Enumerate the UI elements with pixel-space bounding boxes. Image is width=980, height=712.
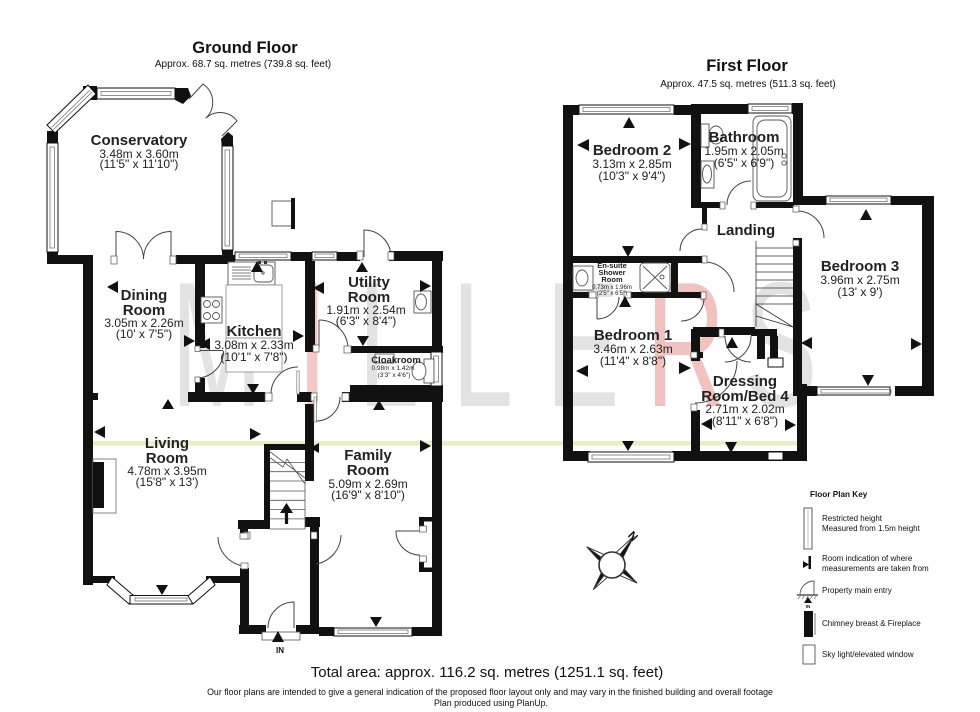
svg-text:Plan produced using PlanUp.: Plan produced using PlanUp. [434,698,548,708]
svg-text:(15'8" x 13'): (15'8" x 13') [136,475,199,489]
svg-text:Ground Floor: Ground Floor [192,39,298,57]
svg-text:(10' x 7'5"): (10' x 7'5") [116,327,172,341]
svg-text:(11'5" x 11'10"): (11'5" x 11'10") [100,157,179,171]
svg-text:Floor Plan Key: Floor Plan Key [810,490,868,499]
svg-text:IN: IN [276,646,284,655]
svg-text:Our floor plans are intended t: Our floor plans are intended to give a g… [207,687,773,697]
svg-text:(6'5" x 6'9"): (6'5" x 6'9") [714,156,774,170]
svg-text:(10'3" x 9'4"): (10'3" x 9'4") [598,169,665,183]
svg-text:(8'11" x 6'8"): (8'11" x 6'8") [712,414,778,428]
svg-text:Room indication of where: Room indication of where [822,554,913,563]
svg-text:(10'1" x 7'8"): (10'1" x 7'8") [220,350,287,364]
svg-text:0.98m x 1.42m: 0.98m x 1.42m [372,365,415,372]
svg-text:IN: IN [806,604,811,609]
svg-text:measurements are taken from: measurements are taken from [822,564,929,573]
svg-text:Chimney breast & Fireplace: Chimney breast & Fireplace [822,619,921,628]
svg-text:Restricted height: Restricted height [822,514,883,523]
svg-text:(6'3" x 8'4"): (6'3" x 8'4") [336,314,396,328]
svg-text:Sky light/elevated window: Sky light/elevated window [822,650,914,659]
svg-text:Room: Room [601,275,623,284]
svg-text:Approx. 68.7 sq. metres (739.8: Approx. 68.7 sq. metres (739.8 sq. feet) [155,59,331,70]
svg-text:Total area: approx. 116.2 sq.: Total area: approx. 116.2 sq. metres (12… [311,664,663,681]
svg-text:Measured from 1.5m height: Measured from 1.5m height [822,524,921,533]
svg-text:(11'4" x 8'8"): (11'4" x 8'8") [600,354,666,368]
svg-text:(3'3" x 4'6"): (3'3" x 4'6") [378,372,411,379]
svg-text:(13' x 9'): (13' x 9') [837,285,882,299]
svg-text:First Floor: First Floor [706,57,788,75]
svg-text:Landing: Landing [717,222,775,239]
svg-text:(16'9" x 8'10"): (16'9" x 8'10") [331,488,405,502]
svg-text:Approx. 47.5 sq. metres (511.3: Approx. 47.5 sq. metres (511.3 sq. feet) [660,79,835,90]
svg-text:Property main entry: Property main entry [822,586,892,595]
svg-text:(2'5" x 6'5"): (2'5" x 6'5") [597,291,627,297]
